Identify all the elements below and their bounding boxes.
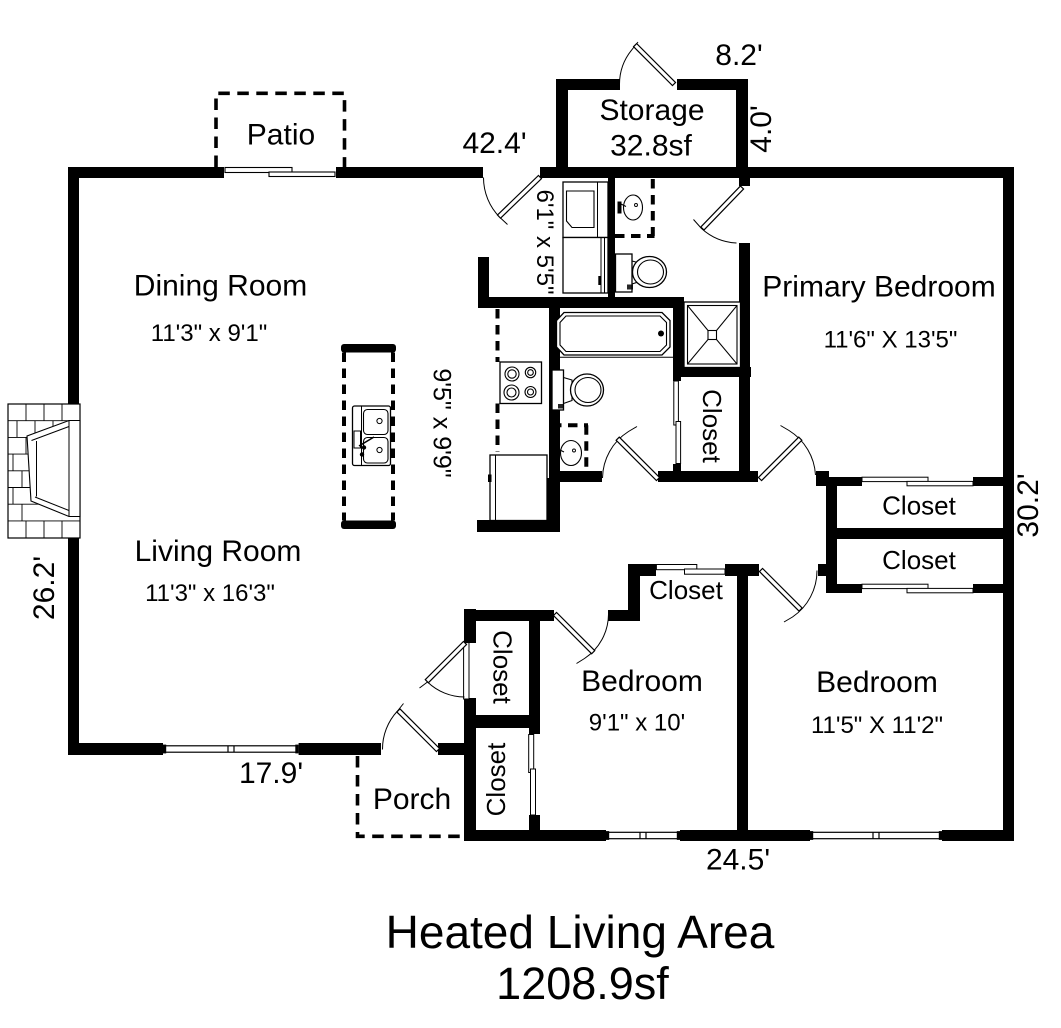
svg-text:11'3" x 9'1": 11'3" x 9'1" (151, 320, 268, 347)
svg-text:Closet: Closet (882, 491, 956, 521)
svg-text:Dining Room: Dining Room (134, 270, 307, 303)
svg-text:1208.9sf: 1208.9sf (496, 958, 669, 1009)
svg-text:26.2': 26.2' (28, 556, 61, 620)
svg-text:Primary Bedroom: Primary Bedroom (762, 271, 995, 304)
svg-text:Closet: Closet (649, 575, 723, 605)
svg-text:Closet: Closet (488, 630, 518, 704)
svg-text:42.4': 42.4' (462, 127, 526, 160)
svg-text:9'1" x 10': 9'1" x 10' (589, 710, 685, 737)
svg-text:24.5': 24.5' (706, 844, 770, 877)
svg-text:Closet: Closet (697, 389, 727, 463)
svg-text:Bedroom: Bedroom (816, 666, 938, 699)
svg-text:4.0': 4.0' (745, 105, 778, 152)
svg-text:Heated Living Area: Heated Living Area (386, 906, 775, 958)
svg-text:11'3" x 16'3": 11'3" x 16'3" (145, 580, 275, 607)
svg-text:Bedroom: Bedroom (581, 665, 703, 698)
svg-text:Closet: Closet (481, 742, 511, 816)
svg-text:11'5" X 11'2": 11'5" X 11'2" (811, 712, 943, 739)
svg-text:11'6" X 13'5": 11'6" X 13'5" (824, 327, 958, 354)
svg-text:Patio: Patio (247, 119, 315, 152)
svg-text:Storage: Storage (599, 94, 704, 127)
svg-text:8.2': 8.2' (715, 39, 762, 72)
svg-text:17.9': 17.9' (239, 757, 303, 790)
svg-text:9'5" x 9'9": 9'5" x 9'9" (428, 368, 456, 477)
svg-text:6'1" x 5'5": 6'1" x 5'5" (531, 190, 558, 295)
svg-text:Porch: Porch (373, 783, 451, 816)
svg-text:30.2': 30.2' (1012, 473, 1045, 537)
svg-text:Living Room: Living Room (135, 535, 302, 568)
svg-text:32.8sf: 32.8sf (610, 130, 692, 163)
svg-text:Closet: Closet (882, 545, 956, 575)
